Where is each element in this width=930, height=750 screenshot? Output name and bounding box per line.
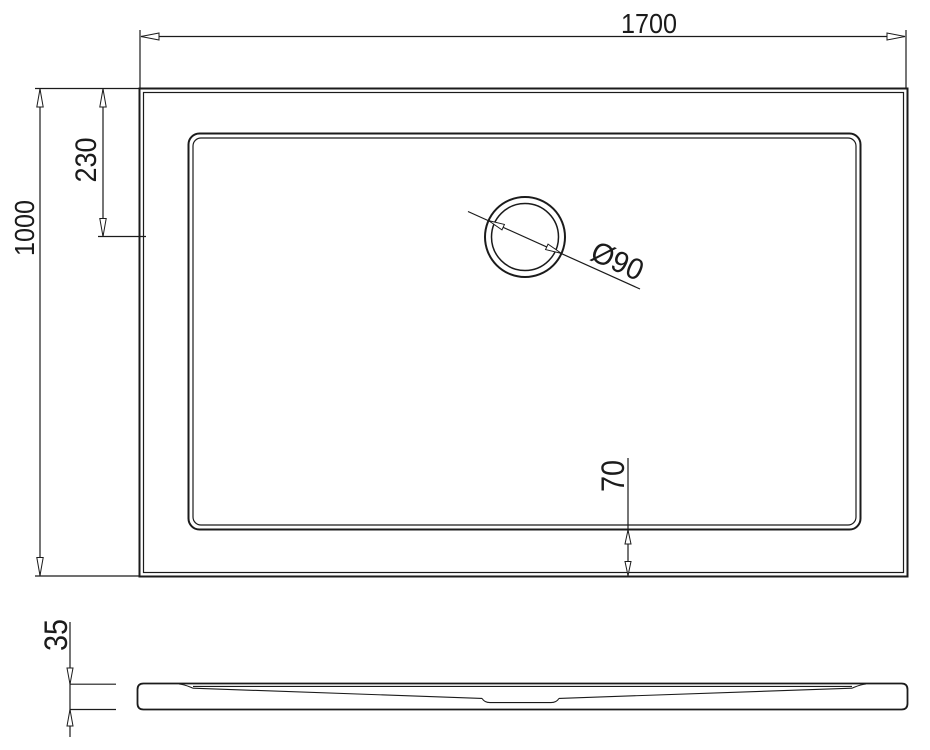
arrowhead-up (67, 710, 73, 727)
arrowhead-down (100, 219, 106, 237)
shower-tray-technical-drawing: 1700 1000 230 70 Ø90 35 (0, 0, 930, 750)
tray-rim-inner-line (144, 93, 904, 573)
arrowhead-up (100, 89, 106, 107)
dim-height-linework (67, 622, 116, 737)
tray-floor-edge (189, 134, 861, 530)
profile-outline (138, 684, 908, 710)
profile-floor-slope-left (193, 688, 482, 698)
profile-view-linework (138, 684, 908, 710)
arrowhead-down (67, 668, 73, 684)
drawing-linework (0, 0, 930, 750)
arrowhead-down (625, 562, 631, 576)
dim-width-linework (140, 30, 906, 88)
arrowhead-down (37, 558, 43, 576)
dim-height-label: 35 (40, 619, 72, 651)
dim-bottom-gap-label: 70 (597, 460, 629, 492)
plan-view-linework (140, 89, 908, 577)
profile-left-lip (179, 684, 193, 688)
dim-width-label: 1700 (621, 10, 677, 38)
dim-drain-offset-label: 230 (72, 137, 102, 182)
profile-right-lip (852, 684, 866, 688)
dim-depth-label: 1000 (11, 200, 39, 256)
arrowhead-right (887, 33, 905, 40)
arrowhead-left (141, 33, 159, 40)
profile-drain-recess (482, 698, 559, 702)
arrowhead-up (37, 89, 43, 107)
profile-floor-slope-right (559, 688, 852, 698)
tray-outer-edge (140, 89, 908, 577)
arrowhead-up (625, 530, 631, 544)
